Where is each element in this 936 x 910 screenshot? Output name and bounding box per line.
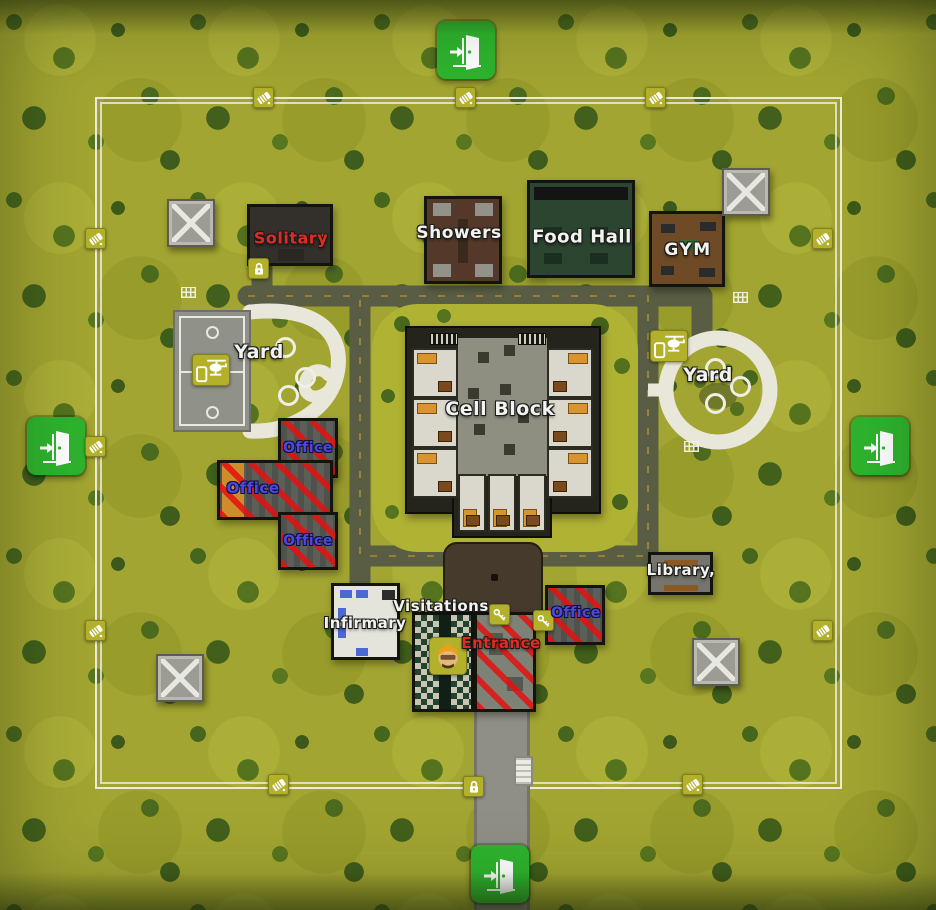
door-glyph [480, 854, 520, 894]
guard-tower [722, 168, 770, 216]
label-yard-right: Yard [683, 364, 733, 386]
yard-table [295, 367, 316, 388]
exit-door-icon-left[interactable] [27, 417, 85, 475]
guard-tower [692, 638, 740, 686]
fence-marker-icon[interactable] [682, 774, 703, 795]
roll-glyph [87, 438, 105, 456]
label-entrance: Entrance [461, 634, 540, 652]
cell [488, 474, 516, 532]
cell [458, 474, 486, 532]
fence-marker-icon[interactable] [455, 87, 476, 108]
label-cell-block: Cell Block [445, 398, 554, 420]
label-office-bottom: Office [283, 533, 333, 549]
label-food-hall: Food Hall [532, 227, 632, 248]
label-office-gate: Office [551, 605, 601, 621]
padlock-icon[interactable] [248, 258, 269, 279]
yard-table [705, 393, 726, 414]
padlock-glyph [466, 779, 482, 795]
padlock-icon[interactable] [463, 776, 484, 797]
prison-map[interactable]: Solitary Showers Food Hall GYM Yard Yard… [0, 0, 936, 910]
court-key-circle [206, 406, 219, 419]
roll-glyph [647, 89, 665, 107]
yard-table [730, 376, 751, 397]
key-icon[interactable] [489, 604, 510, 625]
roll-glyph [814, 230, 832, 248]
roll-glyph [87, 230, 105, 248]
door-glyph [36, 426, 76, 466]
guard-tower [167, 199, 215, 247]
fence-marker-icon[interactable] [645, 87, 666, 108]
cell-bars-icon [518, 333, 546, 345]
door-glyph [446, 30, 486, 70]
padlock-glyph [251, 261, 267, 277]
fence-marker-icon[interactable] [812, 620, 833, 641]
key-glyph [536, 613, 552, 629]
label-yard-left: Yard [234, 341, 284, 363]
cell [547, 448, 593, 498]
goal-net-icon [684, 441, 699, 452]
roll-glyph [87, 622, 105, 640]
cell [547, 348, 593, 398]
fence-marker-icon[interactable] [268, 774, 289, 795]
label-solitary: Solitary [254, 229, 328, 248]
door-glyph [860, 426, 900, 466]
exit-door-icon-bottom[interactable] [471, 845, 529, 903]
court-key-circle [206, 326, 219, 339]
label-gym: GYM [664, 240, 711, 260]
roll-glyph [270, 776, 288, 794]
cell [412, 348, 458, 398]
cell [518, 474, 546, 532]
label-office-top: Office [283, 440, 333, 456]
helicopter-phone-icon[interactable] [650, 330, 688, 362]
label-visitations: Visitations [393, 597, 489, 615]
helicopter-phone-glyph [652, 332, 686, 360]
roll-glyph [255, 89, 273, 107]
roll-glyph [814, 622, 832, 640]
goal-net-icon [181, 287, 196, 298]
cell-bars-icon [430, 333, 458, 345]
key-glyph [492, 607, 508, 623]
player-face-glyph [432, 640, 464, 672]
label-infirmary: Infirmary [324, 614, 407, 632]
fence-marker-icon[interactable] [85, 620, 106, 641]
exit-door-icon-right[interactable] [851, 417, 909, 475]
helicopter-phone-icon[interactable] [192, 354, 230, 386]
yard-table [278, 385, 299, 406]
fence-marker-icon[interactable] [85, 228, 106, 249]
label-library: Library, [647, 561, 716, 579]
label-showers: Showers [416, 223, 501, 243]
goal-net-icon [733, 292, 748, 303]
label-office-left: Office [226, 479, 279, 497]
fence-marker-icon[interactable] [253, 87, 274, 108]
fence-marker-icon[interactable] [812, 228, 833, 249]
room-entrance [474, 612, 536, 712]
guard-tower [156, 654, 204, 702]
exit-door-icon-top[interactable] [437, 21, 495, 79]
road-gate [514, 756, 533, 786]
fence-marker-icon[interactable] [85, 436, 106, 457]
roll-glyph [684, 776, 702, 794]
helicopter-phone-glyph [194, 356, 228, 384]
roll-glyph [457, 89, 475, 107]
cell [412, 448, 458, 498]
